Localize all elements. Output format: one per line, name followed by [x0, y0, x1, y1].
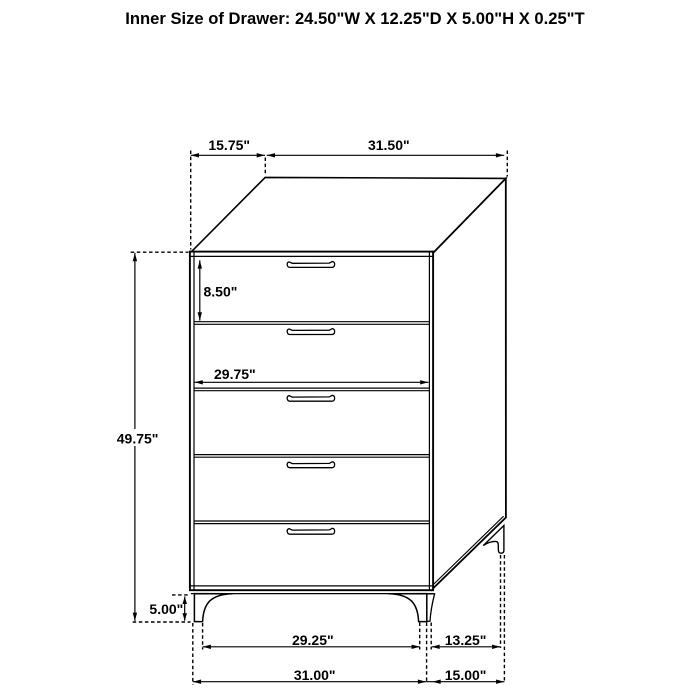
svg-text:5.00": 5.00" — [149, 601, 183, 617]
svg-text:29.25": 29.25" — [292, 632, 334, 648]
svg-text:Inner Size of Drawer: 24.50"W: Inner Size of Drawer: 24.50"W X 12.25"D … — [125, 9, 584, 28]
svg-text:15.00": 15.00" — [445, 667, 487, 683]
svg-text:29.75": 29.75" — [214, 366, 256, 382]
svg-text:31.00": 31.00" — [294, 667, 336, 683]
svg-text:8.50": 8.50" — [204, 283, 238, 299]
svg-text:13.25": 13.25" — [445, 632, 487, 648]
svg-text:31.50": 31.50" — [368, 137, 410, 153]
svg-text:15.75": 15.75" — [208, 137, 250, 153]
svg-text:49.75": 49.75" — [117, 430, 159, 446]
